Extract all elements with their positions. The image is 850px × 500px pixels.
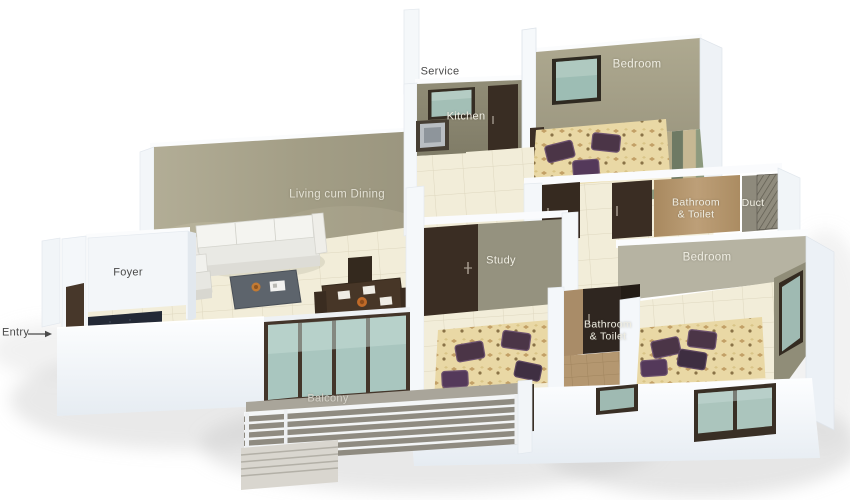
- bathroom-door: [583, 286, 621, 354]
- coffee-table: [230, 270, 301, 309]
- pillow: [677, 349, 707, 370]
- pillow: [442, 370, 469, 387]
- bedroom-top-right-wall: [700, 38, 722, 186]
- balcony-steps: [241, 440, 338, 490]
- foyer-left-wall: [42, 238, 60, 327]
- kitchen-window: [428, 87, 475, 120]
- bathroom-tan-wall: [654, 175, 740, 237]
- pillow: [687, 329, 717, 349]
- kitchen-door: [488, 84, 518, 156]
- kitchen-sink: [416, 119, 449, 152]
- parapet-wall: [57, 317, 264, 416]
- pillow: [640, 359, 667, 377]
- floorplan-canvas: Service Kitchen Bedroom Living cum Dinin…: [0, 0, 850, 500]
- study-door: [424, 224, 478, 319]
- foyer: [42, 227, 196, 336]
- duct-grill: [757, 174, 778, 230]
- pillow: [501, 330, 531, 351]
- duct: [742, 174, 778, 232]
- bathroom-front-window: [596, 384, 638, 415]
- tray: [270, 280, 286, 291]
- bedroom-right-front-window: [694, 383, 776, 442]
- wall-strip: [548, 287, 564, 402]
- entry-door: [66, 283, 84, 330]
- study: [406, 186, 568, 401]
- passage-door: [612, 180, 652, 239]
- balcony-glass-doors: [268, 316, 406, 401]
- bedroom-top-window: [552, 55, 601, 105]
- floorplan-3d-rendering: [0, 0, 850, 500]
- bedroom-right-side-window: [779, 270, 803, 356]
- pillow: [591, 133, 621, 153]
